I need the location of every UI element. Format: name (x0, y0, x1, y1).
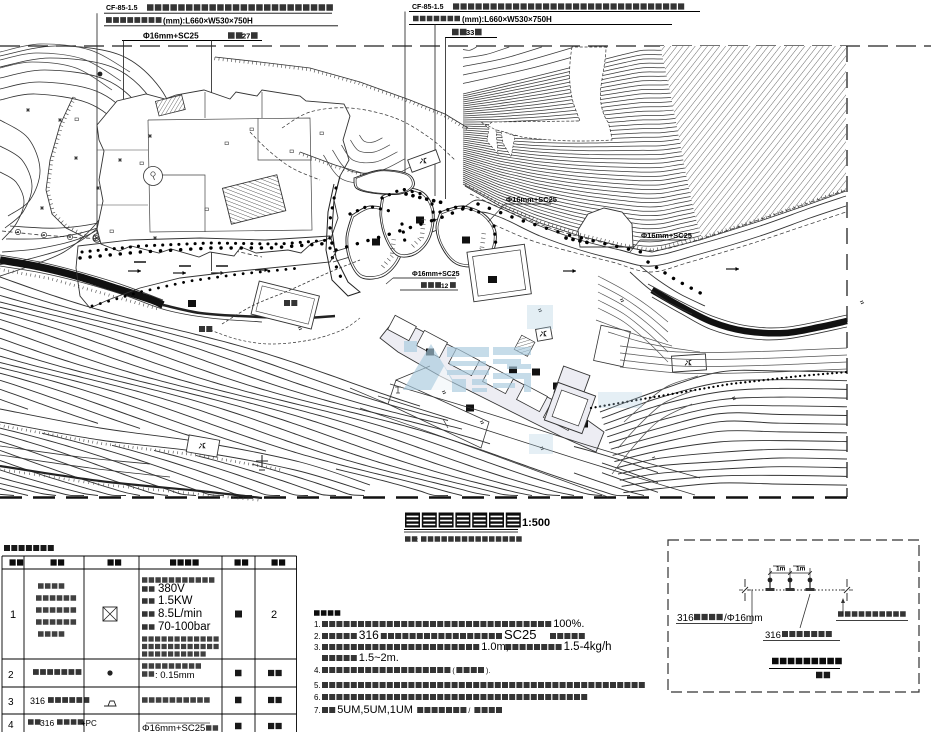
svg-text:Φ16mm+SC25: Φ16mm+SC25 (506, 195, 557, 204)
svg-text:100%.: 100%. (553, 618, 584, 630)
svg-text:(mm):L660×W530×750H: (mm):L660×W530×750H (163, 17, 253, 26)
svg-text:2: 2 (271, 609, 277, 621)
svg-text:4.: 4. (314, 666, 321, 675)
svg-text:6.: 6. (314, 693, 321, 702)
svg-text:380V: 380V (158, 583, 185, 595)
svg-text:/: / (468, 708, 470, 715)
svg-text:316: 316 (677, 613, 694, 624)
svg-text:5UM,5UM,1UM: 5UM,5UM,1UM (337, 704, 413, 716)
svg-text:).: ). (486, 668, 490, 675)
svg-text:1m: 1m (776, 566, 786, 573)
svg-text:CF-85-1.5: CF-85-1.5 (412, 4, 444, 11)
svg-text:70-100bar: 70-100bar (158, 621, 211, 633)
svg-text:27: 27 (242, 32, 250, 41)
svg-text:12: 12 (441, 283, 449, 290)
svg-text:8.5L/min: 8.5L/min (158, 608, 202, 620)
svg-text:1: 1 (10, 609, 16, 621)
svg-text:(: ( (452, 668, 455, 675)
svg-text:316: 316 (40, 718, 54, 728)
svg-text:4: 4 (8, 720, 14, 731)
svg-text:Φ16mm+SC25: Φ16mm+SC25 (143, 32, 199, 41)
svg-text:(mm):L660×W530×750H: (mm):L660×W530×750H (462, 15, 552, 24)
svg-text:316: 316 (30, 696, 45, 706)
svg-text:CF-85-1.5: CF-85-1.5 (106, 5, 138, 12)
svg-text:1.5~2m.: 1.5~2m. (359, 652, 399, 664)
svg-text:+PC: +PC (81, 719, 97, 728)
svg-text:/Φ16mm: /Φ16mm (724, 613, 763, 624)
svg-text:3.: 3. (314, 643, 321, 652)
svg-text:316: 316 (359, 628, 379, 642)
svg-text:1m: 1m (796, 566, 806, 573)
svg-text:Φ16mm+SC25: Φ16mm+SC25 (142, 723, 205, 732)
svg-text:1.: 1. (314, 620, 321, 629)
svg-text:Φ16mm+SC25: Φ16mm+SC25 (641, 231, 692, 240)
svg-text:Φ16mm+SC25: Φ16mm+SC25 (412, 271, 460, 278)
svg-text:7.: 7. (314, 706, 321, 715)
svg-text:2: 2 (8, 670, 14, 681)
svg-text:1.5-4kg/h: 1.5-4kg/h (564, 641, 612, 653)
svg-text:2.: 2. (314, 632, 321, 641)
svg-text:1:500: 1:500 (522, 517, 550, 529)
svg-text:1.5KW: 1.5KW (158, 595, 193, 607)
svg-text:SC25: SC25 (504, 627, 537, 642)
svg-text:1.0m,: 1.0m, (481, 641, 509, 653)
svg-text::: : (417, 538, 418, 544)
svg-text:3: 3 (8, 697, 14, 708)
svg-text:316: 316 (765, 630, 781, 641)
svg-text:33: 33 (466, 28, 474, 37)
svg-text:5.: 5. (314, 681, 321, 690)
svg-text:: 0.15mm: : 0.15mm (155, 670, 195, 681)
